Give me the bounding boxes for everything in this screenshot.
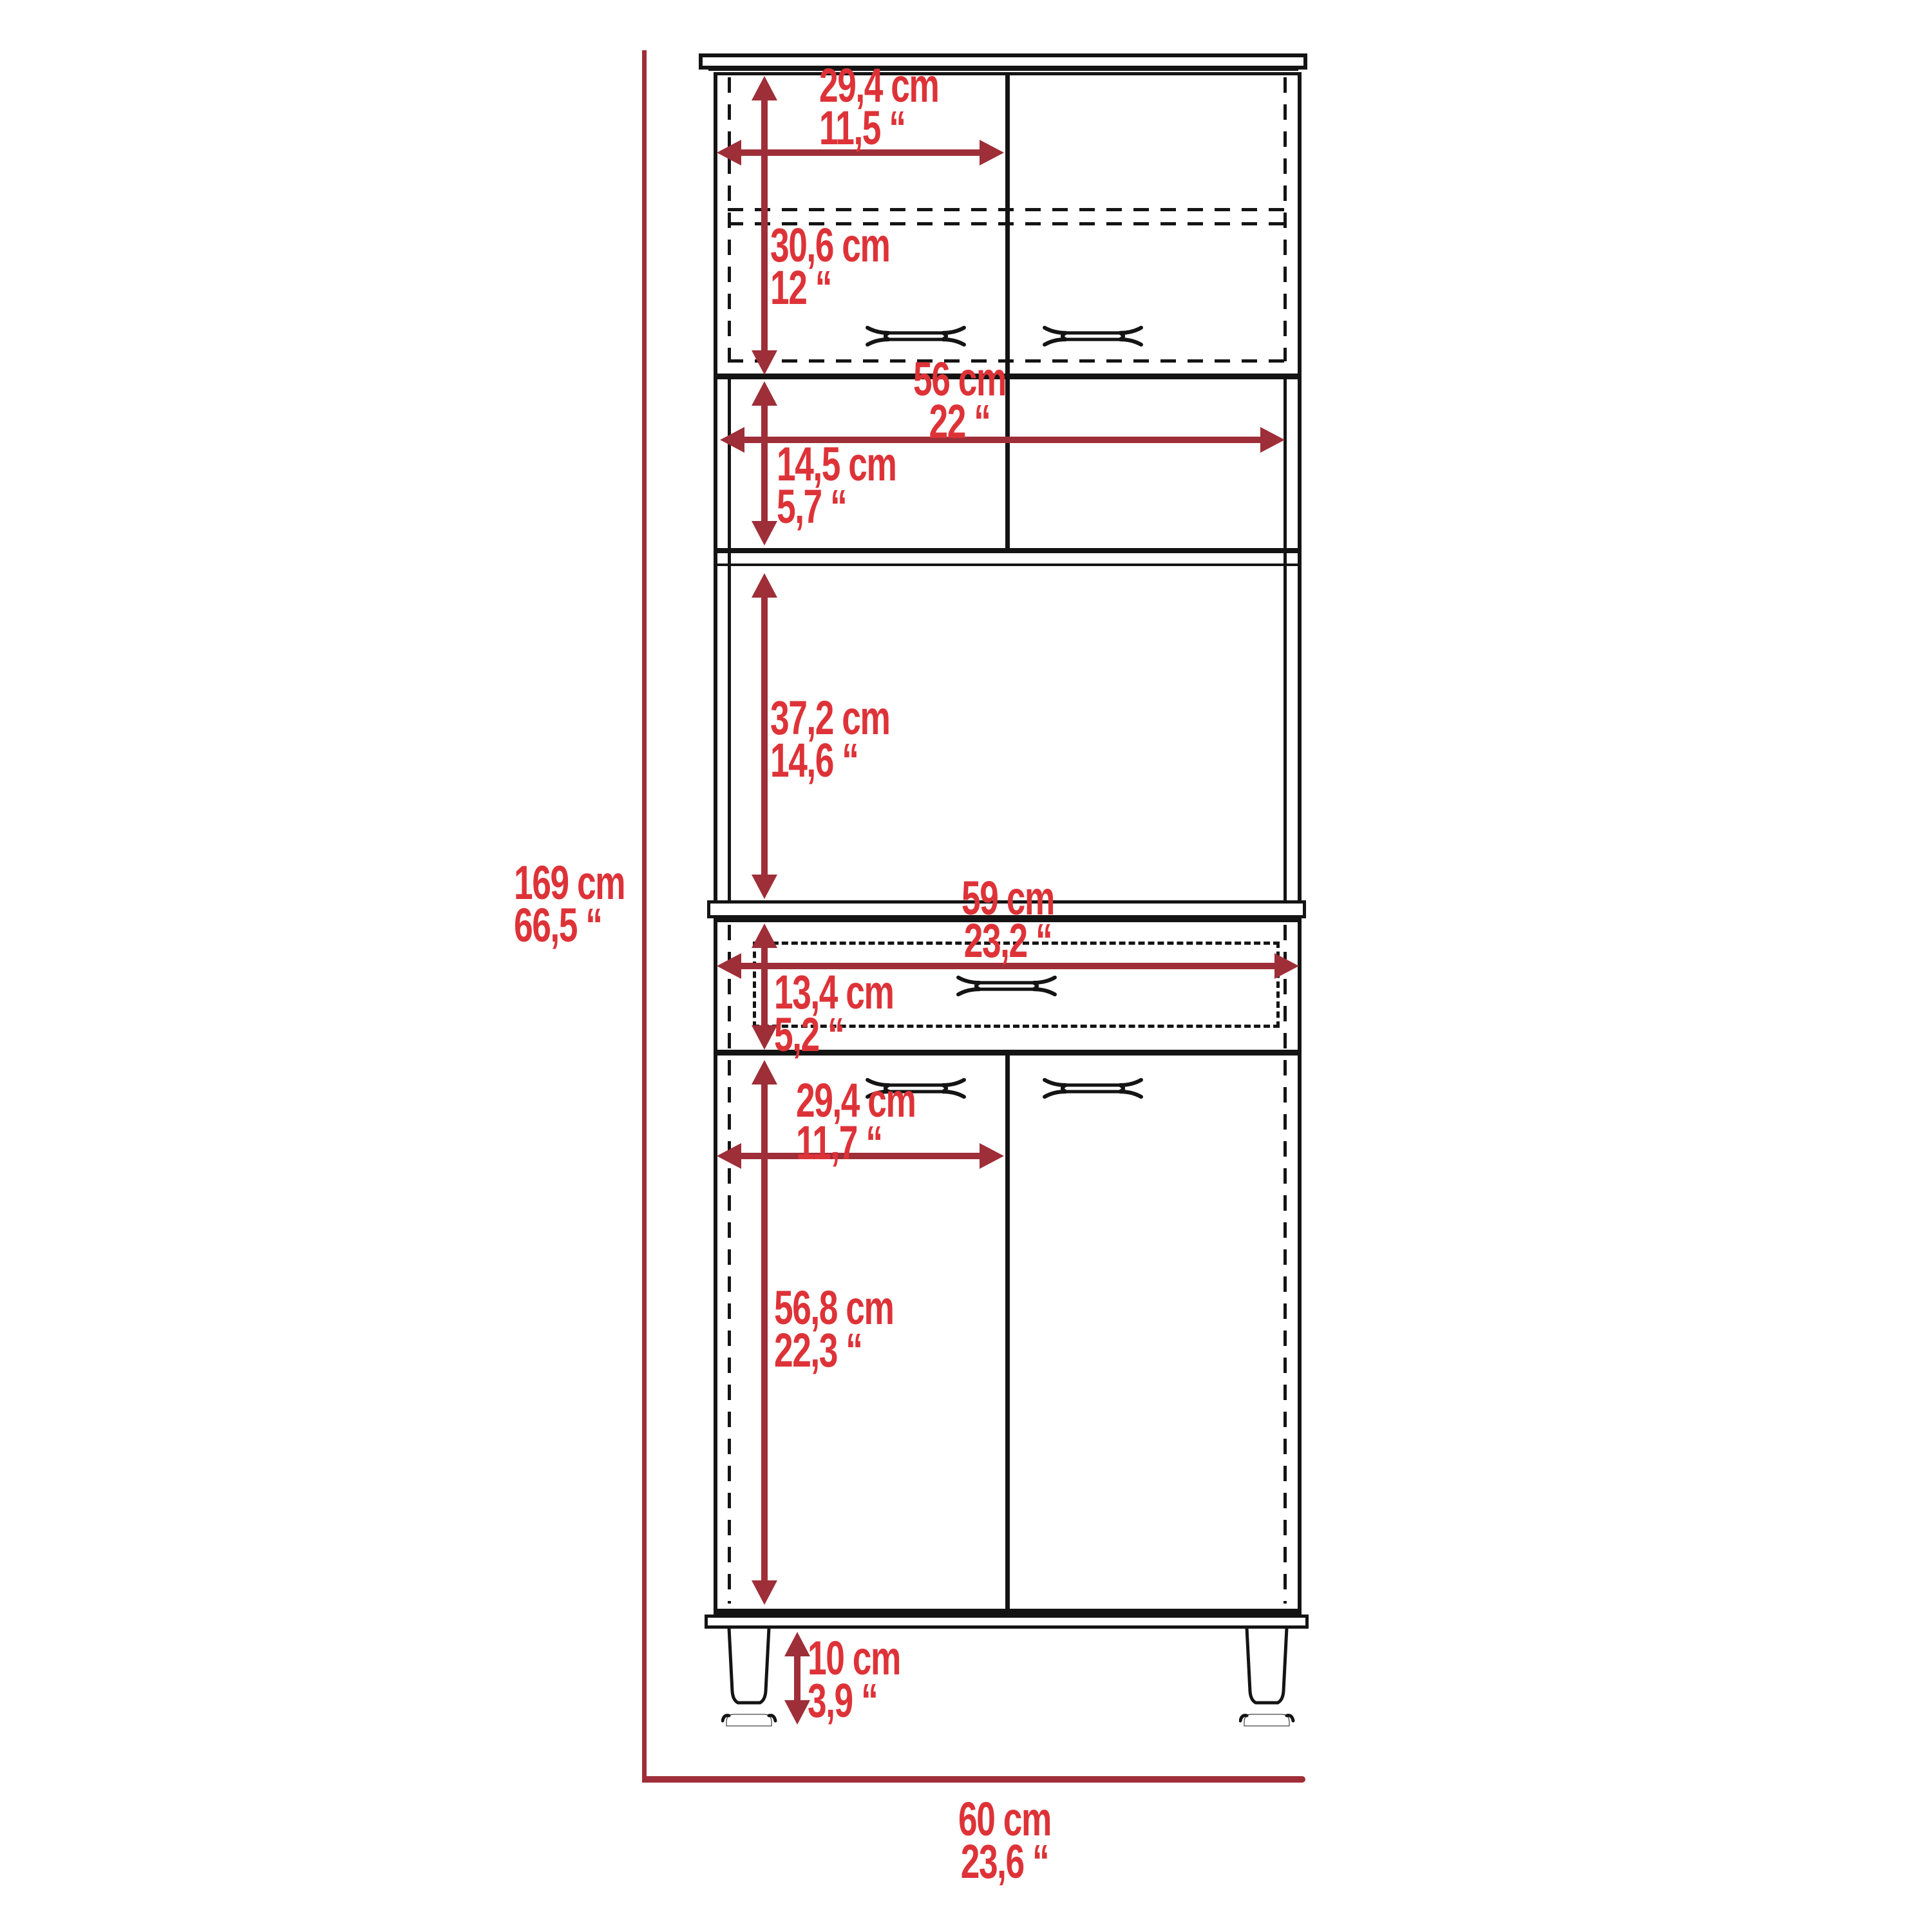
upper-right-door-handle (1041, 326, 1145, 346)
dim-upper-door-width-inch: 11,5 “ (819, 107, 938, 149)
arrow-open-shelf-height (750, 381, 779, 545)
left-wall (714, 72, 717, 1614)
upper-shelf-hidden-edge-1 (728, 208, 1285, 211)
dim-drawer-height: 13,4 cm 5,2 “ (774, 971, 893, 1056)
upper-left-door-handle (864, 326, 968, 346)
dim-lower-door-width: 29,4 cm 11,7 “ (796, 1079, 915, 1164)
upper-hidden-edge-left (728, 77, 731, 361)
total-height-extent-line (642, 50, 647, 1783)
top-underline (708, 68, 1298, 71)
dim-leg-height-inch: 3,9 “ (808, 1680, 900, 1722)
dim-drawer-width-inch: 23,2 “ (931, 920, 1084, 962)
right-leg (1239, 1628, 1297, 1730)
lower-doors-bottom-line (714, 1609, 1302, 1615)
drawer-hidden-edge-right (1283, 925, 1287, 1048)
bottom-board (705, 1615, 1309, 1629)
shelf-line-lower (714, 563, 1302, 566)
inner-panel-left (728, 379, 731, 900)
left-leg (721, 1628, 779, 1730)
dim-open-shelf-height: 14,5 cm 5,7 “ (777, 443, 896, 528)
dim-total-height-inch: 66,5 “ (514, 904, 625, 947)
upper-door-divider (1005, 72, 1010, 548)
dim-lower-door-height: 56,8 cm 22,3 “ (774, 1287, 893, 1372)
dim-open-shelf-height-inch: 5,7 “ (777, 486, 896, 528)
cabinet-dimension-diagram: 169 cm 66,5 “ 60 cm 23,6 “ (0, 0, 1932, 1932)
dim-total-width-inch: 23,6 “ (923, 1841, 1086, 1883)
dim-leg-height: 10 cm 3,9 “ (808, 1637, 900, 1722)
lower-door-divider (1005, 1056, 1010, 1609)
dim-open-shelf-width: 56 cm 22 “ (885, 358, 1034, 443)
dim-upper-door-width: 29,4 cm 11,5 “ (819, 64, 938, 149)
lower-right-door-handle (1041, 1078, 1145, 1099)
upper-hidden-edge-right (1283, 77, 1287, 361)
dim-drawer-height-inch: 5,2 “ (774, 1014, 893, 1056)
inner-panel-right (1283, 379, 1287, 900)
right-wall (1298, 72, 1302, 1614)
shelf-line-upper (714, 548, 1302, 553)
dim-lower-door-height-inch: 22,3 “ (774, 1329, 893, 1372)
dim-total-width: 60 cm 23,6 “ (923, 1798, 1086, 1883)
dim-upper-section-height-inch: 12 “ (770, 267, 889, 309)
dim-upper-section-height: 30,6 cm 12 “ (770, 224, 889, 309)
dim-total-height: 169 cm 66,5 “ (514, 862, 625, 947)
dim-open-shelf-width-inch: 22 “ (885, 401, 1034, 443)
drawer-hidden-edge-left (728, 925, 731, 1048)
top-board (699, 53, 1307, 70)
dim-microwave-space-height-inch: 14,6 “ (770, 739, 889, 782)
total-width-extent-line (642, 1776, 1305, 1783)
dim-lower-door-width-inch: 11,7 “ (796, 1122, 915, 1164)
dim-drawer-width: 59 cm 23,2 “ (931, 877, 1084, 962)
lower-hidden-edge-right (1283, 1060, 1287, 1604)
dim-microwave-space-height: 37,2 cm 14,6 “ (770, 697, 889, 782)
